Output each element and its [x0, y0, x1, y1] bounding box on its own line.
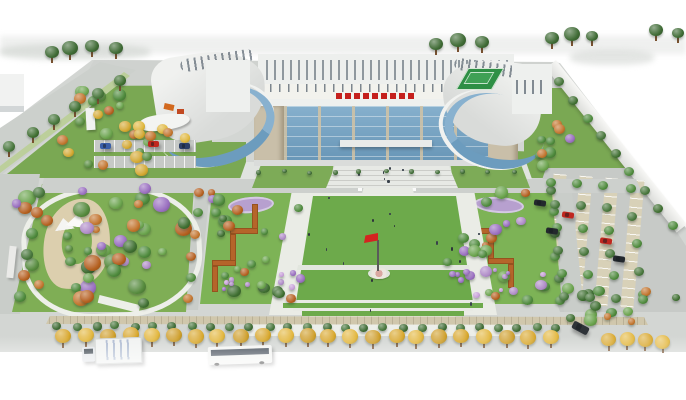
car-blue [100, 143, 111, 149]
car-p2 [562, 211, 575, 219]
car-p5 [613, 255, 626, 263]
car-red [148, 141, 159, 147]
architectural-rendering: Aerial architectural rendering of a civi… [0, 0, 686, 400]
car-dark-se [571, 320, 590, 335]
foreground-fade [0, 336, 686, 400]
car-navy [179, 143, 190, 149]
car-p4 [600, 237, 613, 245]
car-p1 [534, 199, 547, 207]
car-p3 [546, 227, 559, 235]
